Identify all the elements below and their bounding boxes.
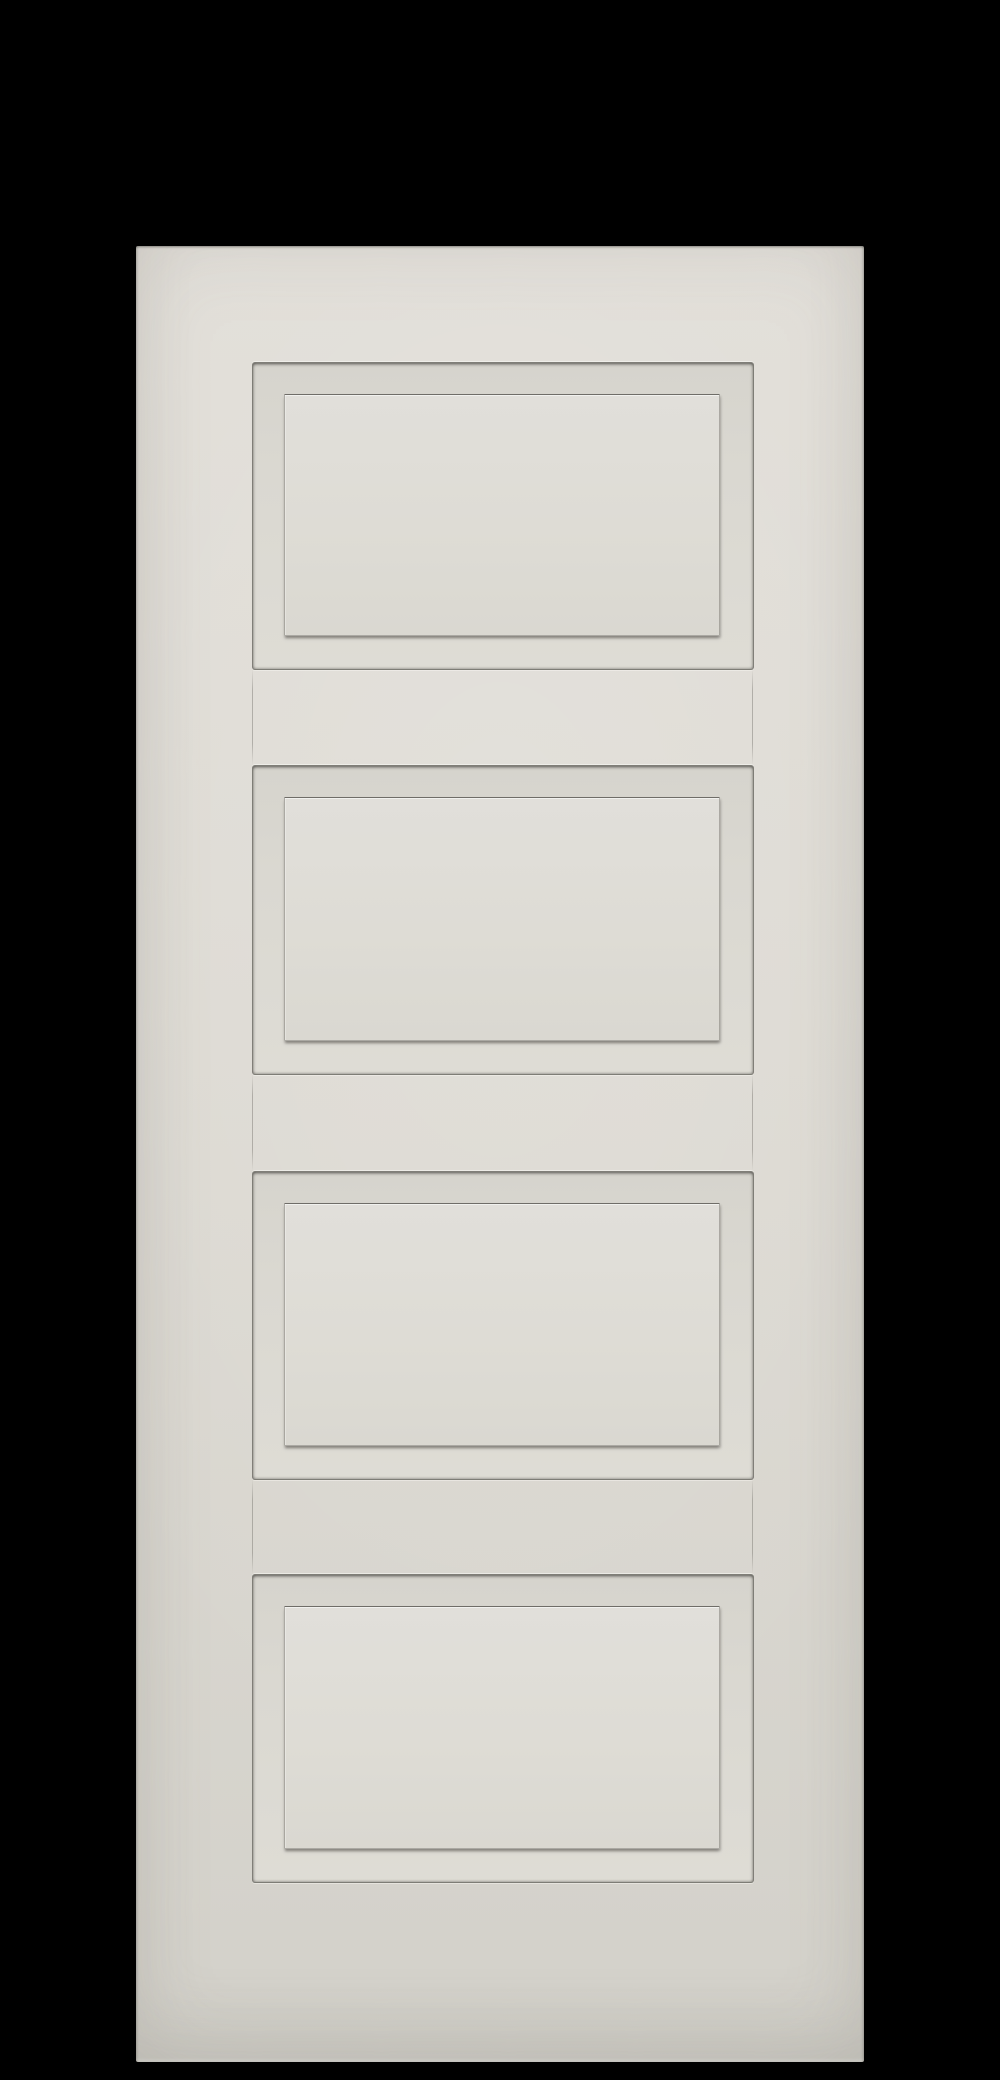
door-panel-2-raised-center bbox=[284, 797, 720, 1041]
door-panel-4 bbox=[252, 1574, 754, 1883]
stile-rail-seam bbox=[752, 669, 753, 765]
stile-rail-seam bbox=[252, 1479, 253, 1574]
door-panel-3-raised-center bbox=[284, 1203, 720, 1446]
stile-rail-seam bbox=[752, 1479, 753, 1574]
door-panel-4-raised-center bbox=[284, 1606, 720, 1849]
door-panel-2 bbox=[252, 765, 754, 1075]
door-panel-3 bbox=[252, 1171, 754, 1480]
stile-rail-seam bbox=[252, 1074, 253, 1171]
photo-background bbox=[0, 0, 1000, 2080]
stile-rail-seam bbox=[752, 1074, 753, 1171]
door-panel-1 bbox=[252, 362, 754, 670]
stile-rail-seam bbox=[252, 669, 253, 765]
door-panel-1-raised-center bbox=[284, 394, 720, 636]
door bbox=[136, 246, 864, 2062]
